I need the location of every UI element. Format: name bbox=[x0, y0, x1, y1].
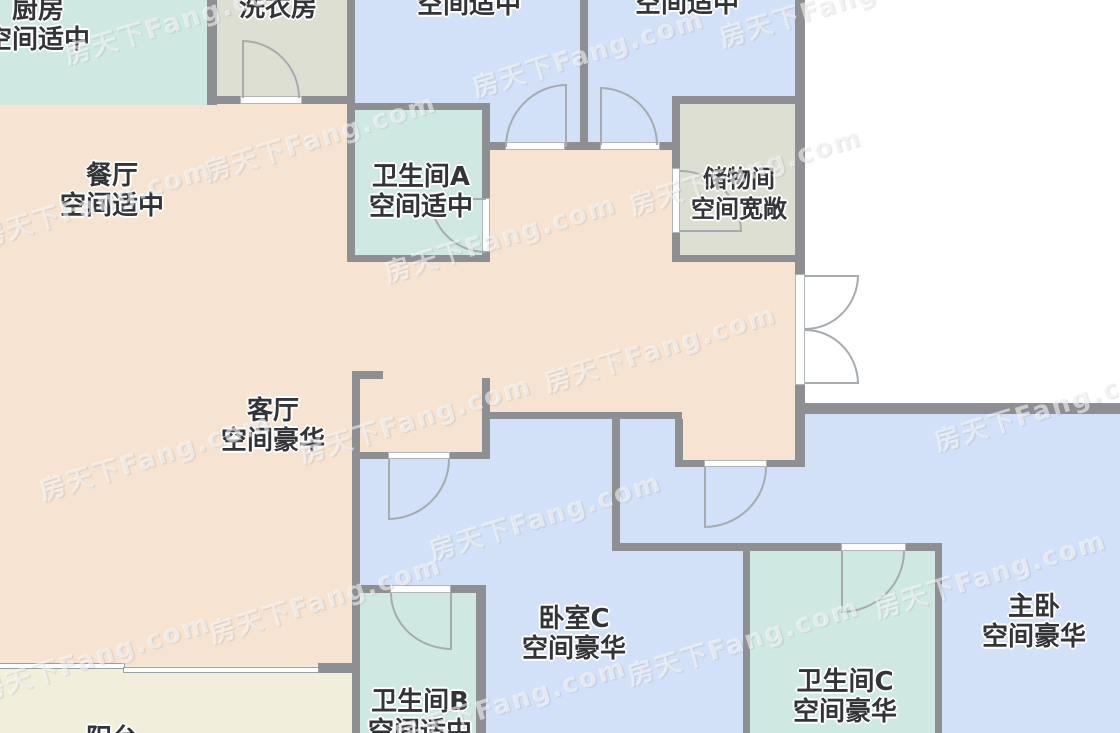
door-threshold bbox=[841, 543, 906, 551]
room-label-living: 客厅 空间豪华 bbox=[221, 396, 325, 456]
wall-segment bbox=[672, 96, 805, 104]
door-threshold bbox=[390, 585, 451, 593]
wall-segment bbox=[360, 452, 388, 459]
wall-segment bbox=[482, 412, 682, 419]
wall-segment bbox=[795, 385, 805, 467]
door-threshold bbox=[672, 168, 680, 233]
room-name: 卧室C bbox=[522, 604, 626, 634]
room-name: 卫生间A bbox=[369, 162, 473, 192]
room-hall-nook-area bbox=[360, 372, 483, 459]
wall-segment bbox=[672, 255, 805, 262]
wall-segment bbox=[612, 419, 620, 551]
room-name: 厨房 bbox=[0, 0, 90, 25]
entry-double-door-leaf-top bbox=[805, 275, 859, 330]
room-name: 洗衣房 bbox=[239, 0, 317, 23]
room-dining-living-area bbox=[0, 96, 360, 666]
room-name: 餐厅 bbox=[60, 161, 164, 191]
room-name: 主卧 bbox=[982, 592, 1086, 622]
wall-segment bbox=[207, 96, 243, 104]
room-space-note: 空间适中 bbox=[0, 25, 90, 55]
wall-segment bbox=[672, 104, 680, 168]
room-name: 储物间 bbox=[691, 164, 787, 194]
room-name: 卫生间B bbox=[368, 687, 472, 717]
room-label-dining: 餐厅 空间适中 bbox=[60, 161, 164, 221]
wall-segment bbox=[352, 371, 360, 733]
window bbox=[0, 663, 125, 669]
door-threshold bbox=[388, 452, 450, 459]
room-label-balcony: 阳台 bbox=[86, 724, 138, 733]
room-hall-right-area bbox=[675, 255, 805, 462]
room-label-bath-b: 卫生间B 空间适中 bbox=[368, 687, 472, 733]
room-space-note: 空间豪华 bbox=[982, 622, 1086, 652]
room-name: 客厅 bbox=[221, 396, 325, 426]
wall-segment bbox=[612, 543, 841, 551]
wall-segment bbox=[935, 543, 942, 733]
wall-segment bbox=[482, 252, 490, 262]
wall-segment bbox=[482, 103, 490, 198]
wall-segment bbox=[743, 543, 750, 733]
room-label-kitchen: 厨房 空间适中 bbox=[0, 0, 90, 55]
room-label-master: 主卧 空间豪华 bbox=[982, 592, 1086, 652]
room-space-note: 空间适中 bbox=[368, 717, 472, 733]
room-space-note: 空间豪华 bbox=[221, 426, 325, 456]
wall-segment bbox=[347, 255, 490, 262]
room-name: 卫生间C bbox=[793, 667, 897, 697]
floor-plan-canvas: 厨房 空间适中 洗衣房 空间适中 空间适中 餐厅 空间适中 卫生间A 空间适中 … bbox=[0, 0, 1120, 733]
room-space-note: 空间豪华 bbox=[522, 634, 626, 664]
wall-segment bbox=[352, 585, 390, 593]
wall-segment bbox=[347, 0, 355, 110]
room-label-top-b: 空间适中 bbox=[635, 0, 739, 19]
room-label-bath-c: 卫生间C 空间豪华 bbox=[793, 667, 897, 727]
wall-segment bbox=[805, 403, 1120, 414]
wall-segment bbox=[767, 460, 805, 467]
room-label-bedroom-c: 卧室C 空间豪华 bbox=[522, 604, 626, 664]
room-label-top-a: 空间适中 bbox=[417, 0, 521, 20]
wall-segment bbox=[580, 0, 588, 150]
room-label-bath-a: 卫生间A 空间适中 bbox=[369, 162, 473, 222]
wall-segment bbox=[565, 142, 600, 150]
room-balcony-area bbox=[0, 666, 352, 733]
wall-segment bbox=[675, 460, 704, 467]
wall-segment bbox=[347, 103, 355, 262]
wall-segment bbox=[476, 585, 486, 733]
entry-double-door-leaf-bottom bbox=[805, 329, 859, 384]
wall-segment bbox=[207, 0, 217, 105]
wall-segment bbox=[318, 663, 360, 673]
room-label-storage: 储物间 空间宽敞 bbox=[691, 164, 787, 224]
room-space-note: 空间宽敞 bbox=[691, 194, 787, 224]
room-space-note: 空间适中 bbox=[417, 0, 521, 20]
door-threshold bbox=[704, 460, 767, 467]
room-space-note: 空间适中 bbox=[369, 192, 473, 222]
room-label-laundry: 洗衣房 bbox=[239, 0, 317, 23]
room-space-note: 空间适中 bbox=[60, 191, 164, 221]
entry-door-threshold bbox=[795, 274, 805, 385]
window bbox=[123, 667, 319, 673]
wall-segment bbox=[795, 0, 805, 274]
room-space-note: 空间豪华 bbox=[793, 697, 897, 727]
room-master-entry-area bbox=[613, 412, 683, 733]
wall-segment bbox=[347, 103, 490, 110]
room-space-note: 空间适中 bbox=[635, 0, 739, 19]
room-name: 阳台 bbox=[86, 724, 138, 733]
